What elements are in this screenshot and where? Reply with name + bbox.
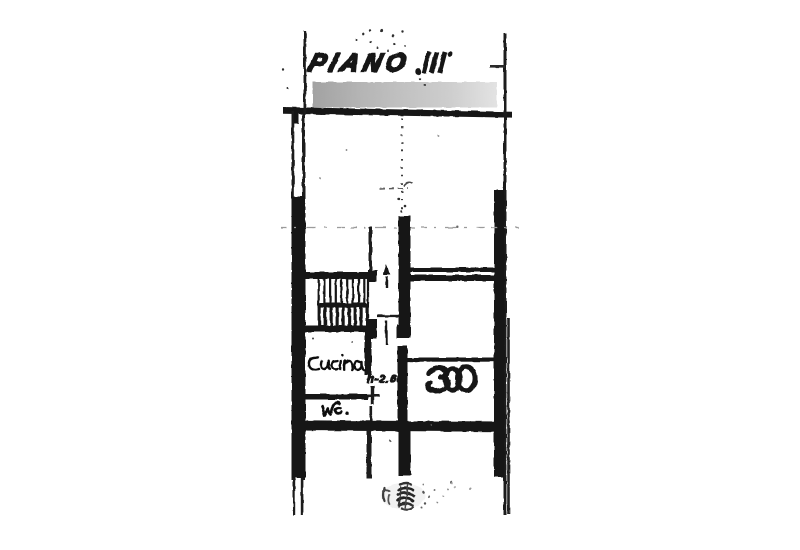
svg-text:PIANO: PIANO (306, 49, 413, 77)
svg-text:h-2.60: h-2.60 (367, 374, 404, 386)
